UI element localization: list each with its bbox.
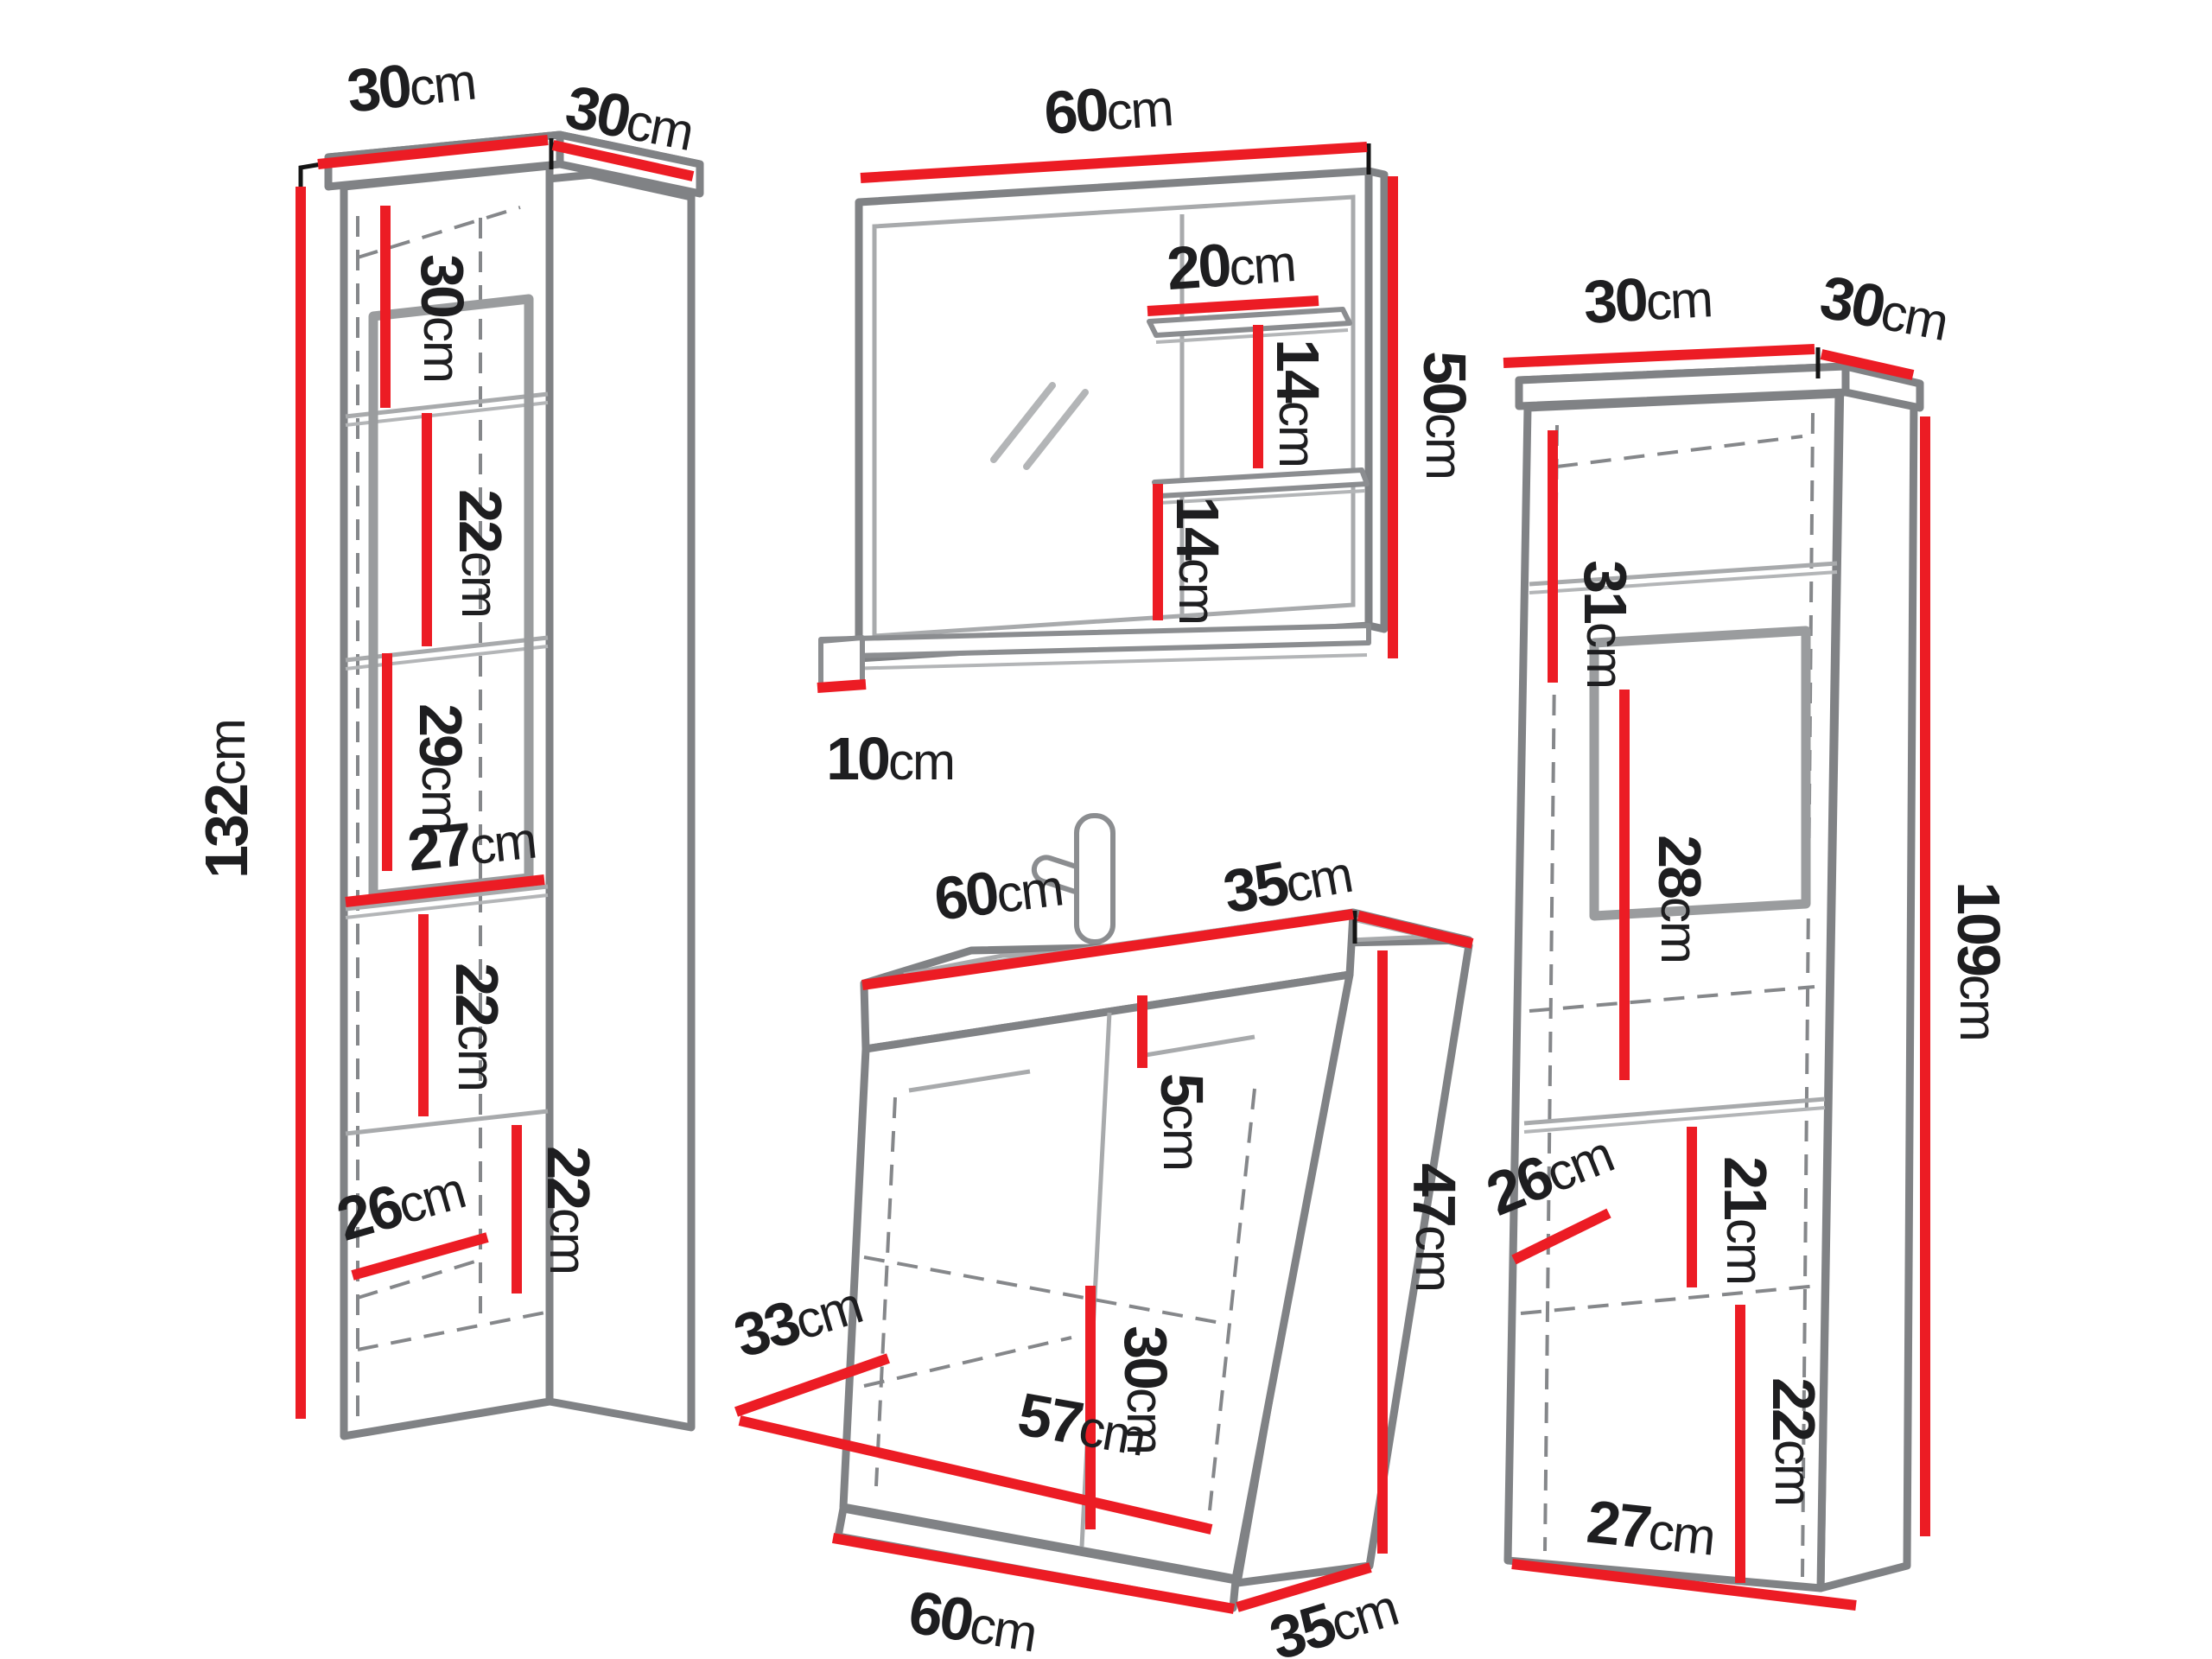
tall-cabinet-left: 30cm 30cm 132cm 30cm 22cm 29cm 27cm 22cm… bbox=[193, 45, 700, 1436]
dim-label-mirror-gap-lower: 14cm bbox=[1164, 496, 1231, 624]
dim-label-mirror-gap-upper: 14cm bbox=[1264, 339, 1332, 467]
dim-label-left-shelf2: 22cm bbox=[447, 489, 514, 617]
dim-label-right-shelf2: 21cm bbox=[1712, 1156, 1779, 1284]
dim-label-vanity-top-width: 60cm bbox=[931, 850, 1065, 932]
furniture-dimensions-diagram: 30cm 30cm 132cm 30cm 22cm 29cm 27cm 22cm… bbox=[0, 0, 2212, 1659]
tall-cabinet-right: 30cm 30cm 109cm 31cm 28cm 21cm 26cm 22cm… bbox=[1478, 262, 2012, 1605]
sink-vanity: 60cm 35cm 5cm 47cm 30cm 33cm 57cm 60cm 3… bbox=[727, 816, 1472, 1659]
diagram-canvas: 30cm 30cm 132cm 30cm 22cm 29cm 27cm 22cm… bbox=[0, 0, 2212, 1659]
dim-label-vanity-basin-height: 5cm bbox=[1148, 1073, 1216, 1170]
dimension-line-top-width bbox=[1503, 349, 1815, 363]
dim-label-left-top-width: 30cm bbox=[344, 45, 478, 125]
dim-label-left-shelf4: 22cm bbox=[443, 963, 511, 1090]
dim-label-left-shelf1: 30cm bbox=[409, 254, 476, 382]
dim-label-right-height: 109cm bbox=[1945, 881, 2012, 1040]
dim-label-mirror-ledge-depth: 10cm bbox=[826, 725, 954, 792]
dimension-line-ledge-depth bbox=[817, 684, 866, 688]
dim-label-left-shelf5: 22cm bbox=[535, 1146, 602, 1274]
dim-label-vanity-bottom-depth: 35cm bbox=[1262, 1571, 1404, 1659]
dim-label-right-top-depth: 30cm bbox=[1815, 263, 1954, 353]
dim-label-right-glass-section: 28cm bbox=[1646, 835, 1713, 963]
dim-label-right-shelf1: 31cm bbox=[1572, 560, 1639, 688]
dim-label-vanity-body-height: 47cm bbox=[1401, 1163, 1468, 1291]
dim-label-left-height: 132cm bbox=[193, 720, 260, 879]
dim-label-mirror-width: 60cm bbox=[1042, 71, 1174, 147]
mirror-cabinet: 60cm 20cm 14cm 14cm 50cm 10cm bbox=[817, 71, 1478, 792]
dim-label-right-top-width: 30cm bbox=[1582, 262, 1713, 336]
dim-label-right-shelf3: 22cm bbox=[1760, 1377, 1827, 1505]
dim-label-mirror-shelf-width: 20cm bbox=[1165, 226, 1297, 302]
dim-label-mirror-height: 50cm bbox=[1411, 351, 1478, 479]
dim-label-vanity-bottom-width: 60cm bbox=[905, 1578, 1041, 1659]
